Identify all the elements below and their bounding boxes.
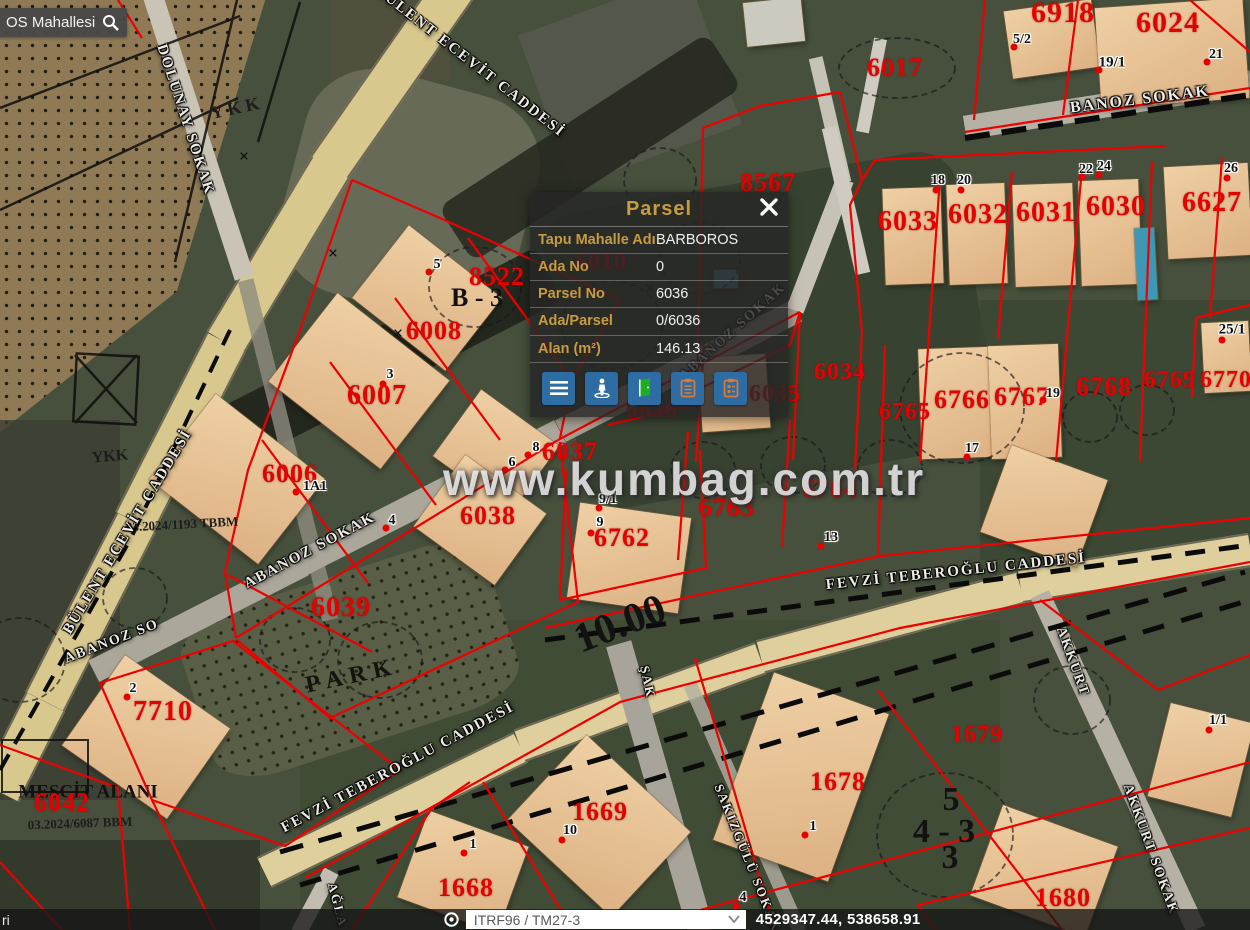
building-footprint xyxy=(1134,228,1158,301)
building-footprint xyxy=(1078,179,1142,286)
popup-row-label: Ada/Parsel xyxy=(538,312,656,330)
popup-row-label: Ada No xyxy=(538,258,656,276)
building-footprint xyxy=(1148,703,1250,817)
building-footprint xyxy=(882,187,943,285)
chevron-down-icon xyxy=(728,914,740,924)
popup-title: Parsel xyxy=(626,198,692,220)
coordinates-readout: 4529347.44, 538658.91 xyxy=(756,911,921,928)
report-button[interactable] xyxy=(714,372,747,405)
door-icon xyxy=(637,378,653,398)
popup-row-label: Tapu Mahalle Adı xyxy=(538,231,656,249)
parcel-corner-dot xyxy=(1096,172,1103,179)
status-bar: ri ITRF96 / TM27-3 4529347.44, 538658.91 xyxy=(0,909,1250,930)
building-footprint xyxy=(743,0,805,47)
search-icon[interactable] xyxy=(102,14,119,31)
parcel-popup: Parsel Tapu Mahalle AdıBARBOROSAda No0Pa… xyxy=(530,192,788,417)
popup-row: Tapu Mahalle AdıBARBOROS xyxy=(530,227,788,254)
crs-selector[interactable]: ITRF96 / TM27-3 xyxy=(466,910,746,929)
map-note-label: 03.2024/6087 BBM xyxy=(27,815,132,832)
map-note-label: × xyxy=(239,147,249,165)
attribution-fragment: ri xyxy=(2,912,10,928)
clipboard-button[interactable] xyxy=(671,372,704,405)
house-number-label: 22 xyxy=(1079,163,1093,177)
building-footprint xyxy=(918,347,994,459)
building-footprint xyxy=(1095,0,1250,108)
target-icon[interactable] xyxy=(443,911,460,928)
map-application: PARKB - 310.0054 - 33MESCİT ALANI03.2024… xyxy=(0,0,1250,930)
building-footprint xyxy=(567,503,691,614)
building-footprint xyxy=(1201,321,1250,393)
map-canvas[interactable]: PARKB - 310.0054 - 33MESCİT ALANI03.2024… xyxy=(0,0,1250,930)
popup-row: Parsel No6036 xyxy=(530,281,788,308)
pegman-icon xyxy=(593,378,611,398)
popup-row-label: Alan (m²) xyxy=(538,340,656,358)
popup-row: Ada No0 xyxy=(530,254,788,281)
popup-row-value: 0/6036 xyxy=(656,312,780,330)
building-footprint xyxy=(946,183,1007,285)
road-path xyxy=(856,38,887,134)
clipboard-list-icon xyxy=(723,378,739,398)
hamburger-icon xyxy=(550,381,568,395)
popup-row-value: BARBOROS xyxy=(656,231,780,249)
popup-row-label: Parsel No xyxy=(538,285,656,303)
clipboard-icon xyxy=(680,378,696,398)
search-box[interactable]: OS Mahallesi xyxy=(0,8,127,37)
building-footprint xyxy=(1004,0,1101,79)
menu-button[interactable] xyxy=(542,372,575,405)
watermark: www.kumbag.com.tr xyxy=(443,452,925,506)
house-number-label: 13 xyxy=(824,531,838,545)
search-text: OS Mahallesi xyxy=(6,14,95,31)
street-view-button[interactable] xyxy=(585,372,618,405)
close-icon[interactable] xyxy=(758,196,780,218)
door-button[interactable] xyxy=(628,372,661,405)
building-footprint xyxy=(1164,163,1250,259)
crs-selected-value: ITRF96 / TM27-3 xyxy=(474,912,580,928)
parcel-corner-dot xyxy=(1079,174,1086,181)
popup-row-value: 0 xyxy=(656,258,780,276)
popup-row: Ada/Parsel0/6036 xyxy=(530,308,788,335)
parcel-corner-dot xyxy=(818,543,825,550)
popup-row-value: 6036 xyxy=(656,285,780,303)
house-number-label: 24 xyxy=(1097,160,1111,174)
building-footprint xyxy=(1012,183,1076,287)
popup-row-value: 146.13 xyxy=(656,340,780,358)
building-footprint xyxy=(988,344,1062,459)
popup-row: Alan (m²)146.13 xyxy=(530,336,788,363)
